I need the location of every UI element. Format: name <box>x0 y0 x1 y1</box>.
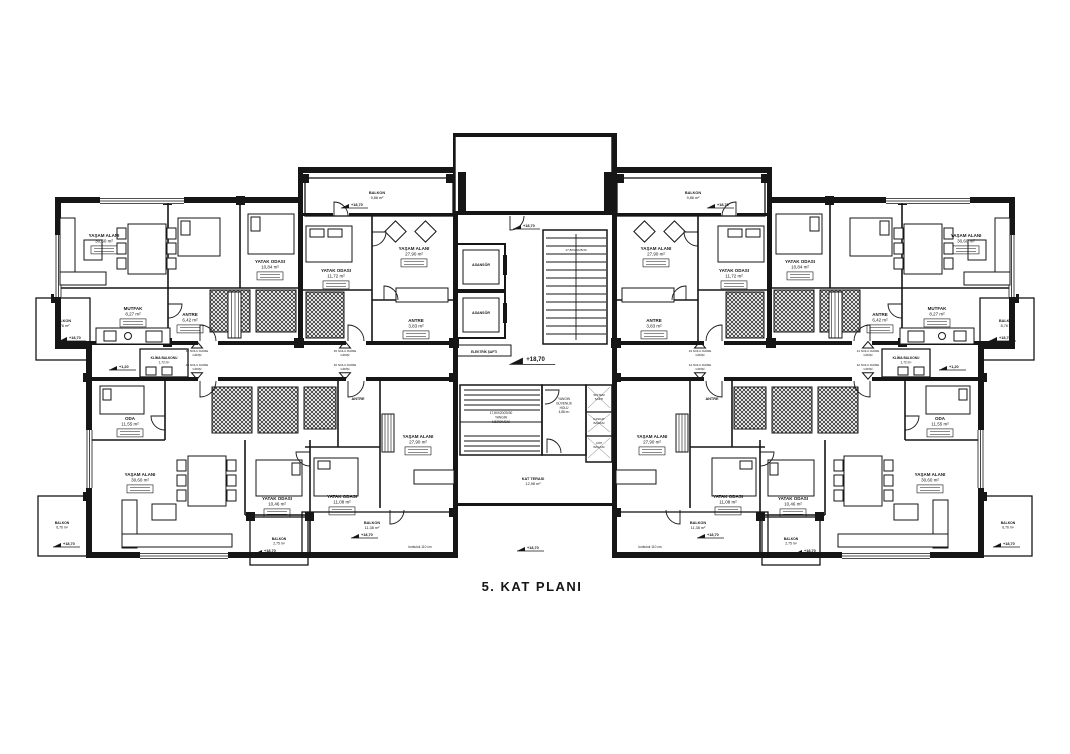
svg-text:GİRİŞİ: GİRİŞİ <box>863 352 872 357</box>
svg-text:10,46 m²: 10,46 m² <box>784 502 802 507</box>
svg-text:6,42 m²: 6,42 m² <box>872 318 888 323</box>
elevation-marker: +18,70 <box>59 336 86 341</box>
finish-schedule-box <box>257 272 283 280</box>
room-label: YAŞAM ALANI30,60 m² <box>915 472 946 493</box>
svg-text:GÜVENLİK: GÜVENLİK <box>556 400 573 405</box>
finish-schedule-box <box>643 259 669 267</box>
svg-text:YAŞAM ALANI: YAŞAM ALANI <box>637 434 668 439</box>
svg-text:30,60 m²: 30,60 m² <box>921 478 939 483</box>
svg-text:MUTFAK: MUTFAK <box>928 306 947 311</box>
svg-text:+18,70: +18,70 <box>999 336 1011 340</box>
finish-schedule-box <box>329 507 355 515</box>
svg-text:GİRİŞİ: GİRİŞİ <box>192 352 201 357</box>
elevation-arrow-icon <box>109 366 117 370</box>
svg-text:+18,70: +18,70 <box>1003 542 1015 546</box>
room-label: YAŞAM ALANI27,90 m² <box>403 434 434 455</box>
svg-text:+18,70: +18,70 <box>707 533 719 537</box>
svg-text:BALKON: BALKON <box>272 537 287 541</box>
floor-plan-sheet: YAŞAM ALANI30,60 m²YATAK ODASI10,84 m²MU… <box>0 0 1070 754</box>
svg-text:GİRİŞİ: GİRİŞİ <box>863 366 872 371</box>
room-label: YATAK ODASI10,84 m² <box>255 259 285 280</box>
finish-schedule-box <box>787 272 813 280</box>
room-label: KLİMA BALKONU1,72 m² <box>893 356 920 364</box>
svg-text:12,98 m²: 12,98 m² <box>526 482 542 486</box>
svg-text:8,76 m²: 8,76 m² <box>1001 324 1015 328</box>
svg-text:11,55 m²: 11,55 m² <box>931 422 949 427</box>
svg-text:11,72 m²: 11,72 m² <box>327 274 345 279</box>
svg-text:1,72 m²: 1,72 m² <box>159 360 170 364</box>
door-swings <box>510 216 561 453</box>
svg-text:27,90 m²: 27,90 m² <box>647 252 665 257</box>
elevation-marker: +18,70 <box>993 542 1020 547</box>
entrance-label-44: 44 NOLU DAİREGİRİŞİ <box>689 362 712 379</box>
svg-text:+18,70: +18,70 <box>361 533 373 537</box>
svg-text:YAŞAM ALANI: YAŞAM ALANI <box>399 246 430 251</box>
svg-text:+18,70: +18,70 <box>523 224 535 228</box>
svg-text:KLİMA BALKONU: KLİMA BALKONU <box>151 356 178 360</box>
room-label: YANGINGÜVENLİKHOLÜ4,88 m² <box>556 397 573 414</box>
room-label: ANTRE <box>705 397 719 401</box>
finish-schedule-box <box>117 429 143 437</box>
svg-text:27,90 m²: 27,90 m² <box>643 440 661 445</box>
svg-text:KLİMA BALKONU: KLİMA BALKONU <box>893 356 920 360</box>
finish-schedule-box <box>405 447 431 455</box>
svg-text:10,84 m²: 10,84 m² <box>261 265 279 270</box>
finish-schedule-box <box>401 259 427 267</box>
svg-text:11,38 m²: 11,38 m² <box>365 526 380 530</box>
dining-table <box>188 456 226 506</box>
svg-text:ANTRE: ANTRE <box>351 397 365 401</box>
svg-text:10,84 m²: 10,84 m² <box>791 265 809 270</box>
svg-text:YAŞAM ALANI: YAŞAM ALANI <box>403 434 434 439</box>
room-label: YATAK ODASI10,84 m² <box>785 259 815 280</box>
room-label: korkuluk 110 cm <box>409 545 432 549</box>
finish-schedule-box <box>641 331 667 339</box>
room-label: ASANSÖR <box>472 310 490 315</box>
room-label: SİSTEMŞAFTI <box>593 392 605 401</box>
svg-text:YANGIN: YANGIN <box>495 415 508 419</box>
elevation-arrow-icon <box>993 543 1001 547</box>
room-label: MUTFAK8,27 m² <box>924 306 950 327</box>
svg-text:11,55 m²: 11,55 m² <box>121 422 139 427</box>
room-label: YATAK ODASI11,72 m² <box>719 268 749 289</box>
svg-text:+18,70: +18,70 <box>69 336 81 340</box>
room-label: 17,80X20/25/30YANGINMERDİVENİ <box>490 411 513 424</box>
svg-text:MUTFAK: MUTFAK <box>124 306 143 311</box>
room-label: KASKATBACASI <box>593 417 605 425</box>
central-core <box>455 133 612 506</box>
svg-text:KAT TERASI: KAT TERASI <box>522 477 545 481</box>
svg-text:30,60 m²: 30,60 m² <box>957 239 975 244</box>
floor-plan-drawing: YAŞAM ALANI30,60 m²YATAK ODASI10,84 m²MU… <box>0 0 1070 754</box>
svg-text:YAŞAM ALANI: YAŞAM ALANI <box>125 472 156 477</box>
finish-schedule-box <box>924 319 950 327</box>
svg-text:HOLÜ: HOLÜ <box>560 406 570 410</box>
elevation-arrow-icon <box>513 225 521 229</box>
room-label: BALKON2,75 m² <box>784 537 799 546</box>
room-label: ELEKTRİK ŞAFTI <box>471 350 497 354</box>
elevation-arrow-icon <box>939 366 947 370</box>
sink <box>125 333 132 340</box>
finish-schedule-box <box>721 281 747 289</box>
svg-text:YAŞAM ALANI: YAŞAM ALANI <box>641 246 672 251</box>
room-label: KAT TERASI12,98 m² <box>522 477 545 486</box>
wardrobe <box>228 292 241 338</box>
svg-text:9,86 m²: 9,86 m² <box>371 196 385 200</box>
elevation-marker: +18,70 <box>509 357 555 364</box>
elevation-arrow-icon <box>707 204 715 208</box>
armchair <box>385 221 406 242</box>
ac-unit <box>146 367 156 375</box>
room-label: ANTRE3,83 m² <box>403 318 429 339</box>
svg-text:BALKON: BALKON <box>690 521 706 525</box>
svg-text:ANTRE: ANTRE <box>182 312 198 317</box>
svg-text:ASANSÖR: ASANSÖR <box>472 310 490 315</box>
svg-text:YATAK ODASI: YATAK ODASI <box>778 496 808 501</box>
svg-text:BALKON: BALKON <box>999 319 1015 323</box>
armchair <box>415 221 436 242</box>
svg-text:2,75 m²: 2,75 m² <box>273 542 285 546</box>
finish-schedule-box <box>177 325 203 333</box>
svg-text:BACASI: BACASI <box>593 421 604 425</box>
svg-text:27,90 m²: 27,90 m² <box>409 440 427 445</box>
elevator-car <box>463 298 499 332</box>
svg-text:17,80X20/25/30: 17,80X20/25/30 <box>565 248 587 252</box>
svg-text:ANTRE: ANTRE <box>872 312 888 317</box>
elevation-arrow-icon <box>509 358 523 365</box>
svg-text:1,72 m²: 1,72 m² <box>901 360 912 364</box>
elevation-marker: +1,20 <box>109 365 136 370</box>
svg-text:17,80X20/25/30: 17,80X20/25/30 <box>490 411 513 415</box>
svg-text:+18,70: +18,70 <box>804 549 816 553</box>
svg-text:BALKON: BALKON <box>784 537 799 541</box>
room-label: BALKON11,38 m² <box>364 521 380 530</box>
right-wing-mirror <box>611 133 1034 565</box>
svg-text:6,42 m²: 6,42 m² <box>182 318 198 323</box>
coffee-table <box>152 504 176 520</box>
room-label: BALKON9,86 m² <box>685 191 701 200</box>
room-label: YAŞAM ALANI27,90 m² <box>399 246 430 267</box>
svg-text:30,60 m²: 30,60 m² <box>131 478 149 483</box>
svg-text:BALKON: BALKON <box>1001 521 1016 525</box>
finish-schedule-box <box>867 325 893 333</box>
light-well <box>455 135 612 213</box>
svg-text:korkuluk 110 cm: korkuluk 110 cm <box>409 545 432 549</box>
plan-title: 5. KAT PLANI <box>482 579 583 594</box>
elevator-shaft <box>457 244 505 290</box>
svg-text:YATAK ODASI: YATAK ODASI <box>713 494 743 499</box>
room-label: ODA11,55 m² <box>927 416 953 437</box>
elevation-arrow-icon <box>53 543 61 547</box>
elevation-arrow-icon <box>697 534 705 538</box>
svg-text:GİRİŞİ: GİRİŞİ <box>695 352 704 357</box>
room-label: ANTRE6,42 m² <box>867 312 893 333</box>
svg-text:4,88 m²: 4,88 m² <box>559 410 570 414</box>
elevation-marker: +18,70 <box>517 546 544 551</box>
svg-text:ODA: ODA <box>935 416 946 421</box>
svg-text:8,76 m²: 8,76 m² <box>57 324 71 328</box>
room-label: ANTRE <box>351 397 365 401</box>
svg-text:BALKON: BALKON <box>55 319 71 323</box>
svg-text:YATAK ODASI: YATAK ODASI <box>262 496 292 501</box>
svg-text:MERDİVENİ: MERDİVENİ <box>492 419 510 424</box>
elevation-marker: +18,70 <box>53 542 80 547</box>
svg-text:11,08 m²: 11,08 m² <box>719 500 737 505</box>
svg-text:YAŞAM ALANI: YAŞAM ALANI <box>915 472 946 477</box>
room-label: BALKON8,76 m² <box>55 319 71 328</box>
room-label: 17,80X20/25/30 <box>565 248 587 252</box>
svg-text:9,86 m²: 9,86 m² <box>687 196 701 200</box>
svg-text:YATAK ODASI: YATAK ODASI <box>785 259 815 264</box>
finish-schedule-box <box>715 507 741 515</box>
room-label: KLİMA BALKONU1,72 m² <box>151 356 178 364</box>
svg-text:+18,70: +18,70 <box>264 549 276 553</box>
finish-schedule-box <box>917 485 943 493</box>
elevation-marker: +1,20 <box>939 365 966 370</box>
entrance-label-46: 46 NOLU DAİREGİRİŞİ <box>334 362 357 379</box>
finish-schedule-box <box>120 319 146 327</box>
room-label: korkuluk 110 cm <box>639 545 662 549</box>
elevation-arrow-icon <box>351 534 359 538</box>
room-label: ASANSÖR <box>472 262 490 267</box>
svg-text:ANTRE: ANTRE <box>408 318 424 323</box>
elevation-marker: +18,70 <box>341 203 368 208</box>
svg-text:korkuluk 110 cm: korkuluk 110 cm <box>639 545 662 549</box>
room-label: YATAK ODASI10,46 m² <box>778 496 808 517</box>
room-label: YAŞAM ALANI27,90 m² <box>641 246 672 267</box>
svg-text:YAŞAM ALANI: YAŞAM ALANI <box>951 233 982 238</box>
elevation-arrow-icon <box>517 547 525 551</box>
svg-text:YATAK ODASI: YATAK ODASI <box>321 268 351 273</box>
room-label: BALKON2,75 m² <box>272 537 287 546</box>
room-label: BALKON6,76 m² <box>1001 521 1016 530</box>
svg-text:+1,20: +1,20 <box>119 365 129 369</box>
finish-schedule-box <box>323 281 349 289</box>
svg-text:+1,20: +1,20 <box>949 365 959 369</box>
room-label: YAŞAM ALANI30,60 m² <box>125 472 156 493</box>
svg-text:GİRİŞİ: GİRİŞİ <box>695 366 704 371</box>
ac-unit <box>162 367 172 375</box>
elevator-shaft <box>457 292 505 338</box>
entrance-label-48: 48 NOLU DAİREGİRİŞİ <box>186 362 209 379</box>
fire-safety-hall <box>542 385 586 455</box>
svg-text:GİRİŞİ: GİRİŞİ <box>340 352 349 357</box>
svg-text:BACASI: BACASI <box>593 445 604 449</box>
sofa <box>60 218 75 276</box>
room-label: ÇÖPBACASI <box>593 441 604 449</box>
room-label: BALKON11,38 m² <box>690 521 706 530</box>
room-label: MUTFAK8,27 m² <box>120 306 146 327</box>
room-label: YATAK ODASI10,46 m² <box>262 496 292 517</box>
finish-schedule-box <box>927 429 953 437</box>
svg-text:11,08 m²: 11,08 m² <box>333 500 351 505</box>
svg-text:10,46 m²: 10,46 m² <box>268 502 286 507</box>
svg-text:ŞAFTI: ŞAFTI <box>595 397 604 401</box>
svg-text:YANGIN: YANGIN <box>558 397 571 401</box>
svg-text:ELEKTRİK ŞAFTI: ELEKTRİK ŞAFTI <box>471 350 497 354</box>
room-label: YATAK ODASI11,72 m² <box>321 268 351 289</box>
room-label: ODA11,55 m² <box>117 416 143 437</box>
left-wing <box>36 133 459 565</box>
finish-schedule-box <box>127 485 153 493</box>
svg-text:GİRİŞİ: GİRİŞİ <box>192 366 201 371</box>
svg-text:ANTRE: ANTRE <box>646 318 662 323</box>
svg-text:BALKON: BALKON <box>55 521 70 525</box>
svg-text:BALKON: BALKON <box>364 521 380 525</box>
svg-text:8,27 m²: 8,27 m² <box>125 312 141 317</box>
room-label: BALKON6,76 m² <box>55 521 70 530</box>
dining-table <box>128 224 166 274</box>
room-label: BALKON9,86 m² <box>369 191 385 200</box>
svg-text:3,83 m²: 3,83 m² <box>408 324 424 329</box>
room-label: ANTRE3,83 m² <box>641 318 667 339</box>
sofa <box>414 470 454 484</box>
svg-text:27,90 m²: 27,90 m² <box>405 252 423 257</box>
svg-text:+18,70: +18,70 <box>717 203 729 207</box>
svg-text:+18,70: +18,70 <box>526 357 545 363</box>
svg-text:YATAK ODASI: YATAK ODASI <box>327 494 357 499</box>
sofa <box>396 288 448 302</box>
svg-text:ODA: ODA <box>125 416 136 421</box>
room-label: BALKON8,76 m² <box>999 319 1015 328</box>
finish-schedule-box <box>403 331 429 339</box>
svg-text:11,72 m²: 11,72 m² <box>725 274 743 279</box>
elevation-marker: +18,70 <box>351 533 378 538</box>
svg-text:+18,70: +18,70 <box>527 546 539 550</box>
svg-text:BALKON: BALKON <box>685 191 701 195</box>
svg-text:+18,70: +18,70 <box>63 542 75 546</box>
svg-text:ANTRE: ANTRE <box>705 397 719 401</box>
svg-text:YATAK ODASI: YATAK ODASI <box>255 259 285 264</box>
finish-schedule-box <box>639 447 665 455</box>
svg-text:BALKON: BALKON <box>369 191 385 195</box>
svg-text:3,83 m²: 3,83 m² <box>646 324 662 329</box>
svg-text:30,60 m²: 30,60 m² <box>95 239 113 244</box>
entrance-label-42: 42 NOLU DAİREGİRİŞİ <box>857 362 880 379</box>
svg-text:GİRİŞİ: GİRİŞİ <box>340 366 349 371</box>
svg-text:ASANSÖR: ASANSÖR <box>472 262 490 267</box>
svg-text:2,75 m²: 2,75 m² <box>785 542 797 546</box>
svg-text:YAŞAM ALANI: YAŞAM ALANI <box>89 233 120 238</box>
elevation-arrow-icon <box>989 337 997 341</box>
svg-text:11,38 m²: 11,38 m² <box>691 526 706 530</box>
svg-text:YATAK ODASI: YATAK ODASI <box>719 268 749 273</box>
elevation-marker: +18,70 <box>697 533 724 538</box>
svg-text:6,76 m²: 6,76 m² <box>1002 526 1014 530</box>
svg-text:6,76 m²: 6,76 m² <box>56 526 68 530</box>
elevation-marker: +18,70 <box>513 224 540 229</box>
svg-text:+18,70: +18,70 <box>351 203 363 207</box>
room-label: YAŞAM ALANI27,90 m² <box>637 434 668 455</box>
svg-text:8,27 m²: 8,27 m² <box>929 312 945 317</box>
elevator-car <box>463 250 499 284</box>
room-label: ANTRE6,42 m² <box>177 312 203 333</box>
